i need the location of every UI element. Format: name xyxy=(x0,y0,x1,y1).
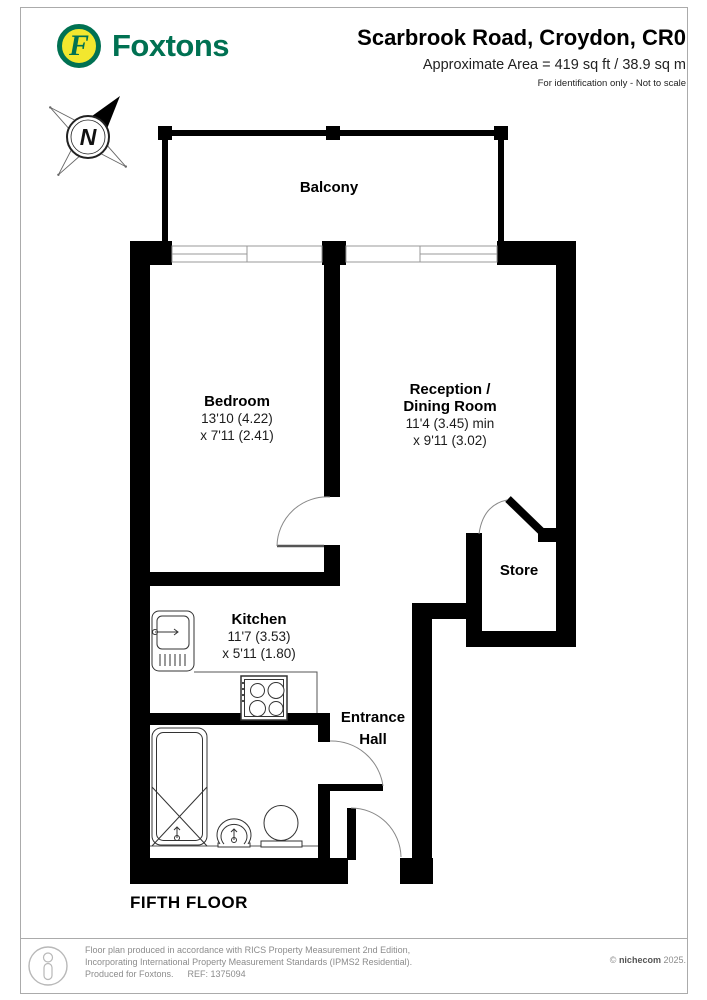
kitchen-sink-icon xyxy=(152,611,194,671)
store-door xyxy=(479,499,541,534)
bedroom-label: Bedroom 13'10 (4.22) x 7'11 (2.41) xyxy=(200,393,274,444)
nichecom-brand: nichecom xyxy=(619,955,661,965)
store-label: Store xyxy=(500,562,538,579)
entrance-door xyxy=(351,808,401,857)
reception-dimensions: x 9'11 (3.02) xyxy=(403,432,496,449)
kitchen-dimensions: 11'7 (3.53) xyxy=(222,628,296,645)
floorplan-page: F Foxtons Scarbrook Road, Croydon, CR0 A… xyxy=(0,0,707,1000)
footer-copyright: © nichecom 2025. xyxy=(610,955,686,965)
footer-line2: Incorporating International Property Mea… xyxy=(85,956,412,968)
compass-north-label: N xyxy=(80,124,97,150)
floor-level-label: FIFTH FLOOR xyxy=(130,893,248,913)
compass-rose-icon: N xyxy=(49,96,127,176)
reception-label: Reception / Dining Room 11'4 (3.45) min … xyxy=(403,381,496,449)
balcony-label: Balcony xyxy=(300,179,358,196)
bedroom-dimensions: x 7'11 (2.41) xyxy=(200,427,274,444)
footer-line1: Floor plan produced in accordance with R… xyxy=(85,944,412,956)
kitchen-dimensions: x 5'11 (1.80) xyxy=(222,645,296,662)
stove-hob-icon xyxy=(241,676,287,720)
footer-line3: Produced for Foxtons.REF: 1375094 xyxy=(85,968,412,980)
kitchen-label: Kitchen 11'7 (3.53) x 5'11 (1.80) xyxy=(222,611,296,662)
bedroom-dimensions: 13'10 (4.22) xyxy=(200,410,274,427)
nichecom-person-icon xyxy=(26,944,70,988)
reception-dimensions: 11'4 (3.45) min xyxy=(403,415,496,432)
entrance-hall-label: Entrance Hall xyxy=(341,707,405,751)
footer-ref: REF: 1375094 xyxy=(188,969,246,979)
toilet-icon xyxy=(261,806,302,848)
footer-disclaimer: Floor plan produced in accordance with R… xyxy=(85,944,412,980)
floor-plan-drawing: N xyxy=(0,0,707,1000)
basin-icon xyxy=(217,819,251,847)
bathtub-icon xyxy=(152,728,207,846)
bedroom-door xyxy=(277,497,330,546)
